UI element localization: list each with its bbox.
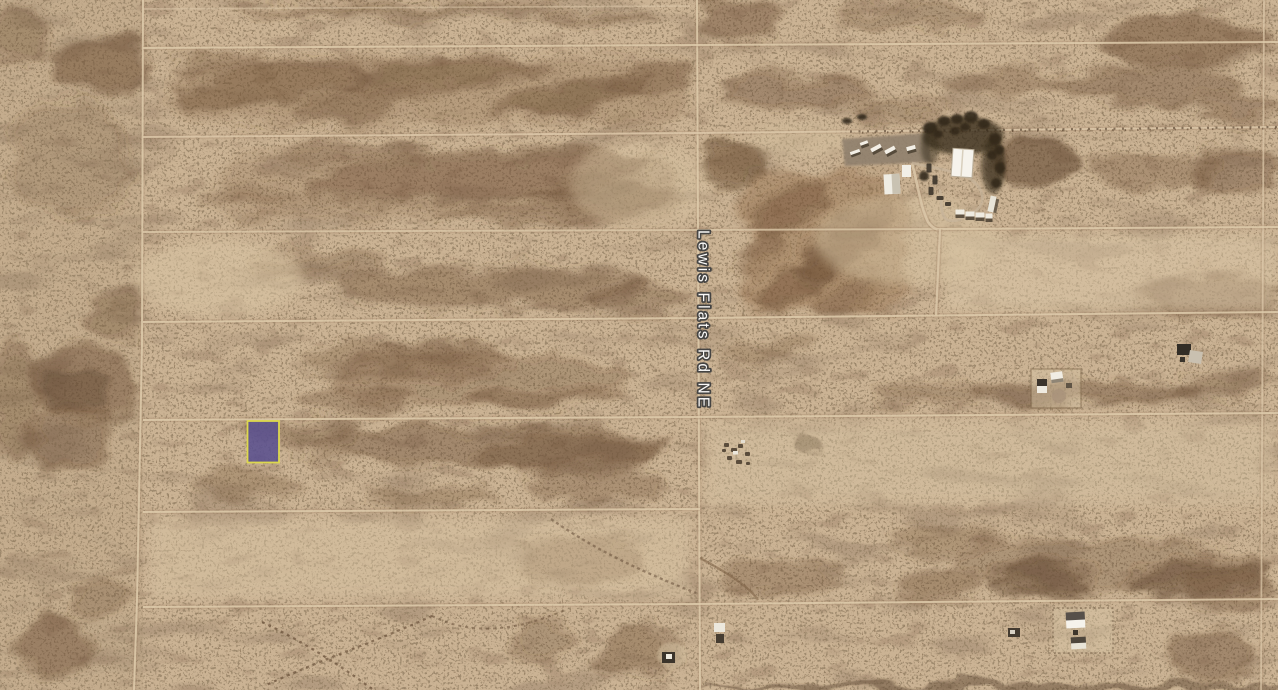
svg-text:Lewis Flats Rd NE: Lewis Flats Rd NE bbox=[695, 230, 712, 410]
